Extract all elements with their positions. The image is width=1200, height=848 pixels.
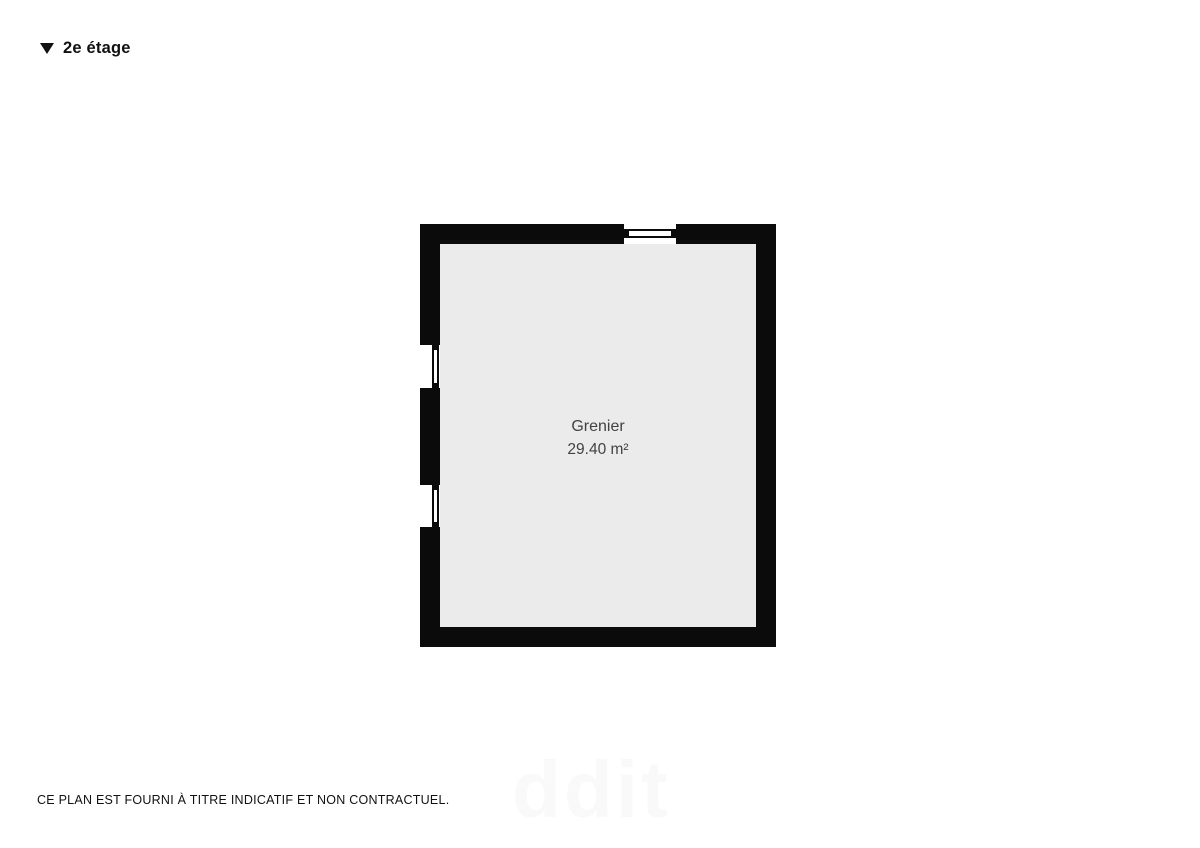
window-jamb bbox=[432, 485, 439, 490]
window-glazing-line bbox=[624, 236, 676, 238]
room-name: Grenier bbox=[440, 417, 756, 438]
window-glazing-line bbox=[432, 485, 434, 527]
floorplan-canvas: Grenier 29.40 m² bbox=[420, 224, 776, 647]
wall-right bbox=[756, 224, 776, 647]
window-jamb bbox=[624, 229, 629, 238]
floor-section-header[interactable]: 2e étage bbox=[40, 39, 131, 58]
window-jamb bbox=[432, 383, 439, 388]
window-jamb bbox=[432, 345, 439, 350]
window-glazing-line bbox=[437, 485, 439, 527]
wall-top bbox=[420, 224, 776, 244]
window-jamb bbox=[432, 522, 439, 527]
window-glazing-line bbox=[624, 229, 676, 231]
window-jamb bbox=[671, 229, 676, 238]
window-glazing-line bbox=[432, 345, 434, 388]
window-left-upper bbox=[420, 345, 440, 388]
window-left-lower bbox=[420, 485, 440, 527]
disclaimer-text: CE PLAN EST FOURNI À TITRE INDICATIF ET … bbox=[37, 793, 449, 807]
window-top bbox=[624, 224, 676, 244]
wall-bottom bbox=[420, 627, 776, 647]
triangle-down-icon bbox=[40, 43, 54, 54]
window-glazing-line bbox=[437, 345, 439, 388]
watermark-text: ddit bbox=[512, 744, 671, 836]
floor-title: 2e étage bbox=[63, 39, 131, 58]
wall-left bbox=[420, 224, 440, 647]
room-label: Grenier 29.40 m² bbox=[440, 417, 756, 460]
room-area: 29.40 m² bbox=[440, 440, 756, 460]
